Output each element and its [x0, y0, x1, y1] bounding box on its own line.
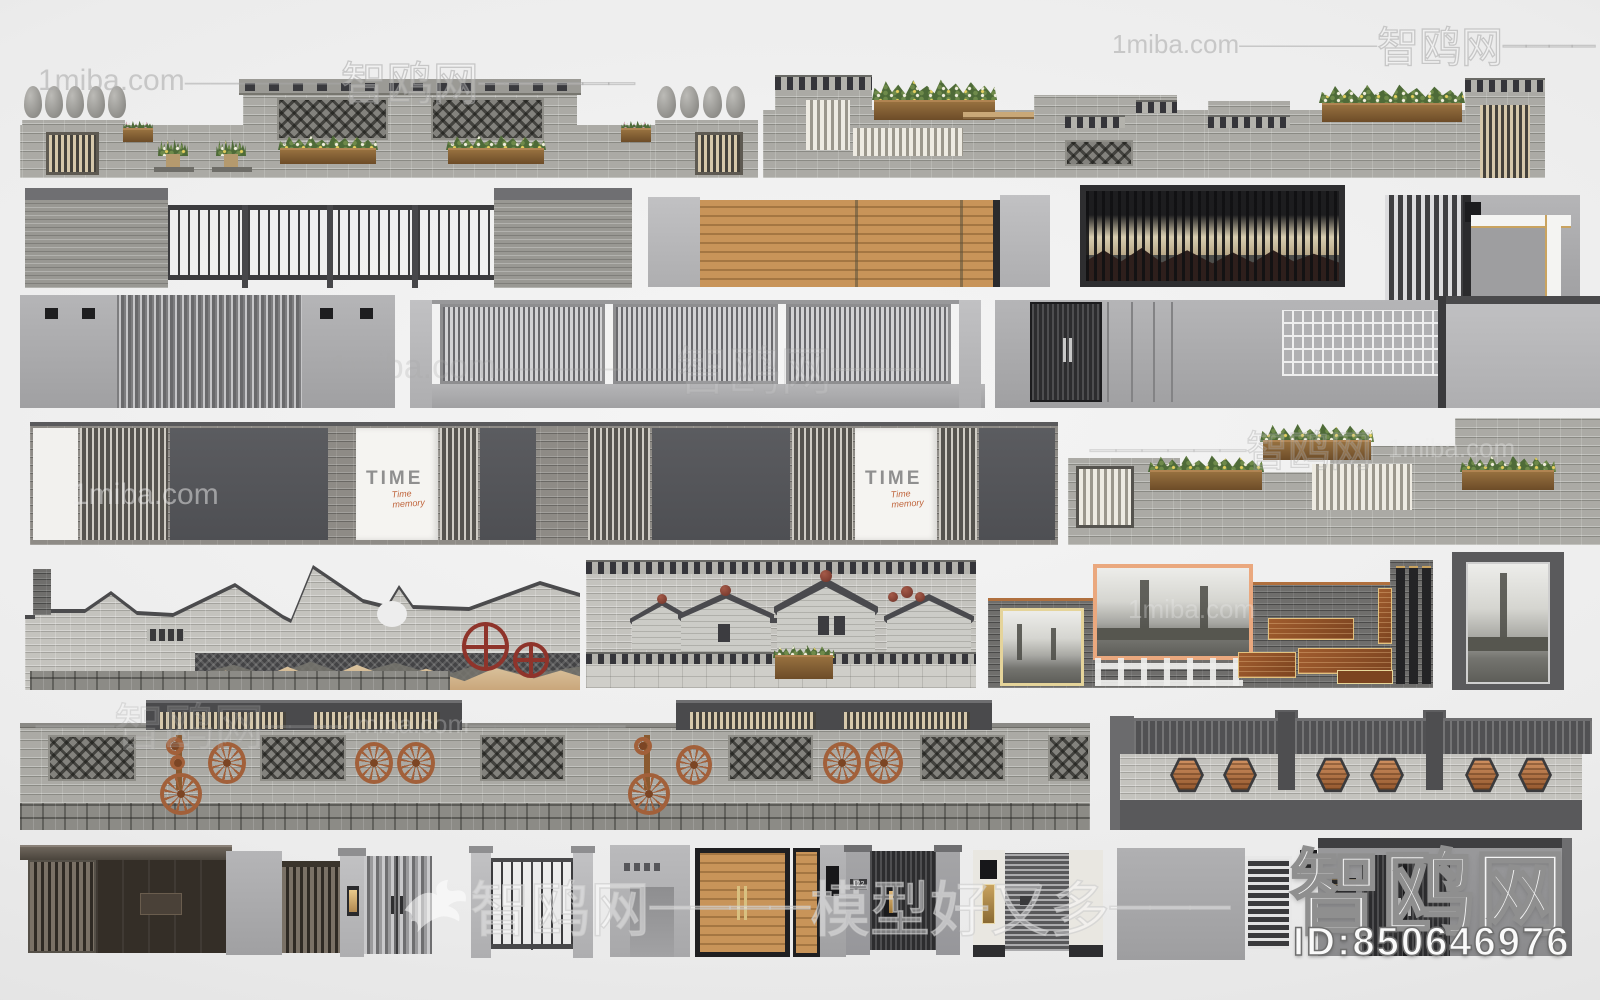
watermark-site-en: 1miba.com — [342, 709, 469, 740]
model-id-text: ID:850646976 — [1293, 920, 1571, 964]
watermark-site-en: 1miba.com — [72, 478, 219, 512]
watermark-site-en: 1miba.com — [1112, 29, 1239, 60]
watermark-dashes: —————— — [185, 66, 341, 97]
watermark-dashes: —————— — [1090, 433, 1246, 464]
watermark-dashes: ———— — [1503, 31, 1595, 58]
watermark-model-id: ID:850646976 — [1293, 920, 1571, 965]
watermark-dashes: —————— — [496, 351, 676, 385]
watermark-layer: 1miba.com —————— 智鸥网 —————— 1miba.com ——… — [0, 0, 1600, 1000]
watermark-dashes: —————— — [1239, 31, 1377, 58]
watermark-row4-left: 1miba.com — [72, 478, 219, 512]
watermark-top-right: 1miba.com —————— 智鸥网 ———— — [1112, 14, 1595, 75]
watermark-site-en: 1miba.com — [1128, 594, 1255, 625]
watermark-row3: 1miba.com —————— 智鸥网 ——— — [330, 330, 922, 405]
watermark-dashes: ——— — [36, 709, 114, 740]
watermark-site-en: 1miba.com — [38, 64, 185, 98]
watermark-row4-right: —————— 智鸥网 1miba.com — [1090, 418, 1515, 479]
watermark-dashes: ——— — [832, 351, 922, 385]
watermark-bottom-center: 智鸥网 ———— 模型好又多 ——— — [400, 862, 1230, 949]
watermark-dashes: —————— — [469, 709, 625, 740]
watermark-dashes: ——— — [264, 709, 342, 740]
bird-logo-icon — [400, 875, 470, 937]
model-preview-sheet: TIME Time memory TIME Time memory — [0, 0, 1600, 1000]
watermark-top-left: 1miba.com —————— 智鸥网 —————— — [38, 48, 635, 114]
watermark-site-en: 1miba.com — [1388, 433, 1515, 464]
watermark-dashes: ——— — [1110, 883, 1230, 928]
watermark-site-en: 1miba.com — [330, 348, 496, 387]
watermark-site-cn: 智鸥网 — [341, 48, 479, 114]
watermark-dashes: ———— — [650, 883, 810, 928]
watermark-tagline: 模型好又多 — [810, 862, 1110, 949]
watermark-site-cn: 智鸥网 — [676, 330, 832, 405]
watermark-site-cn: 智鸥网 — [114, 688, 264, 760]
watermark-dashes: —————— — [479, 66, 635, 97]
watermark-site-cn: 智鸥网 — [1377, 14, 1503, 75]
watermark-site-cn: 智鸥网 — [1246, 418, 1372, 479]
watermark-photo: 1miba.com — [1128, 594, 1255, 625]
watermark-site-cn: 智鸥网 — [470, 862, 650, 949]
watermark-row6: ——— 智鸥网 ——— 1miba.com —————— — [36, 688, 625, 760]
